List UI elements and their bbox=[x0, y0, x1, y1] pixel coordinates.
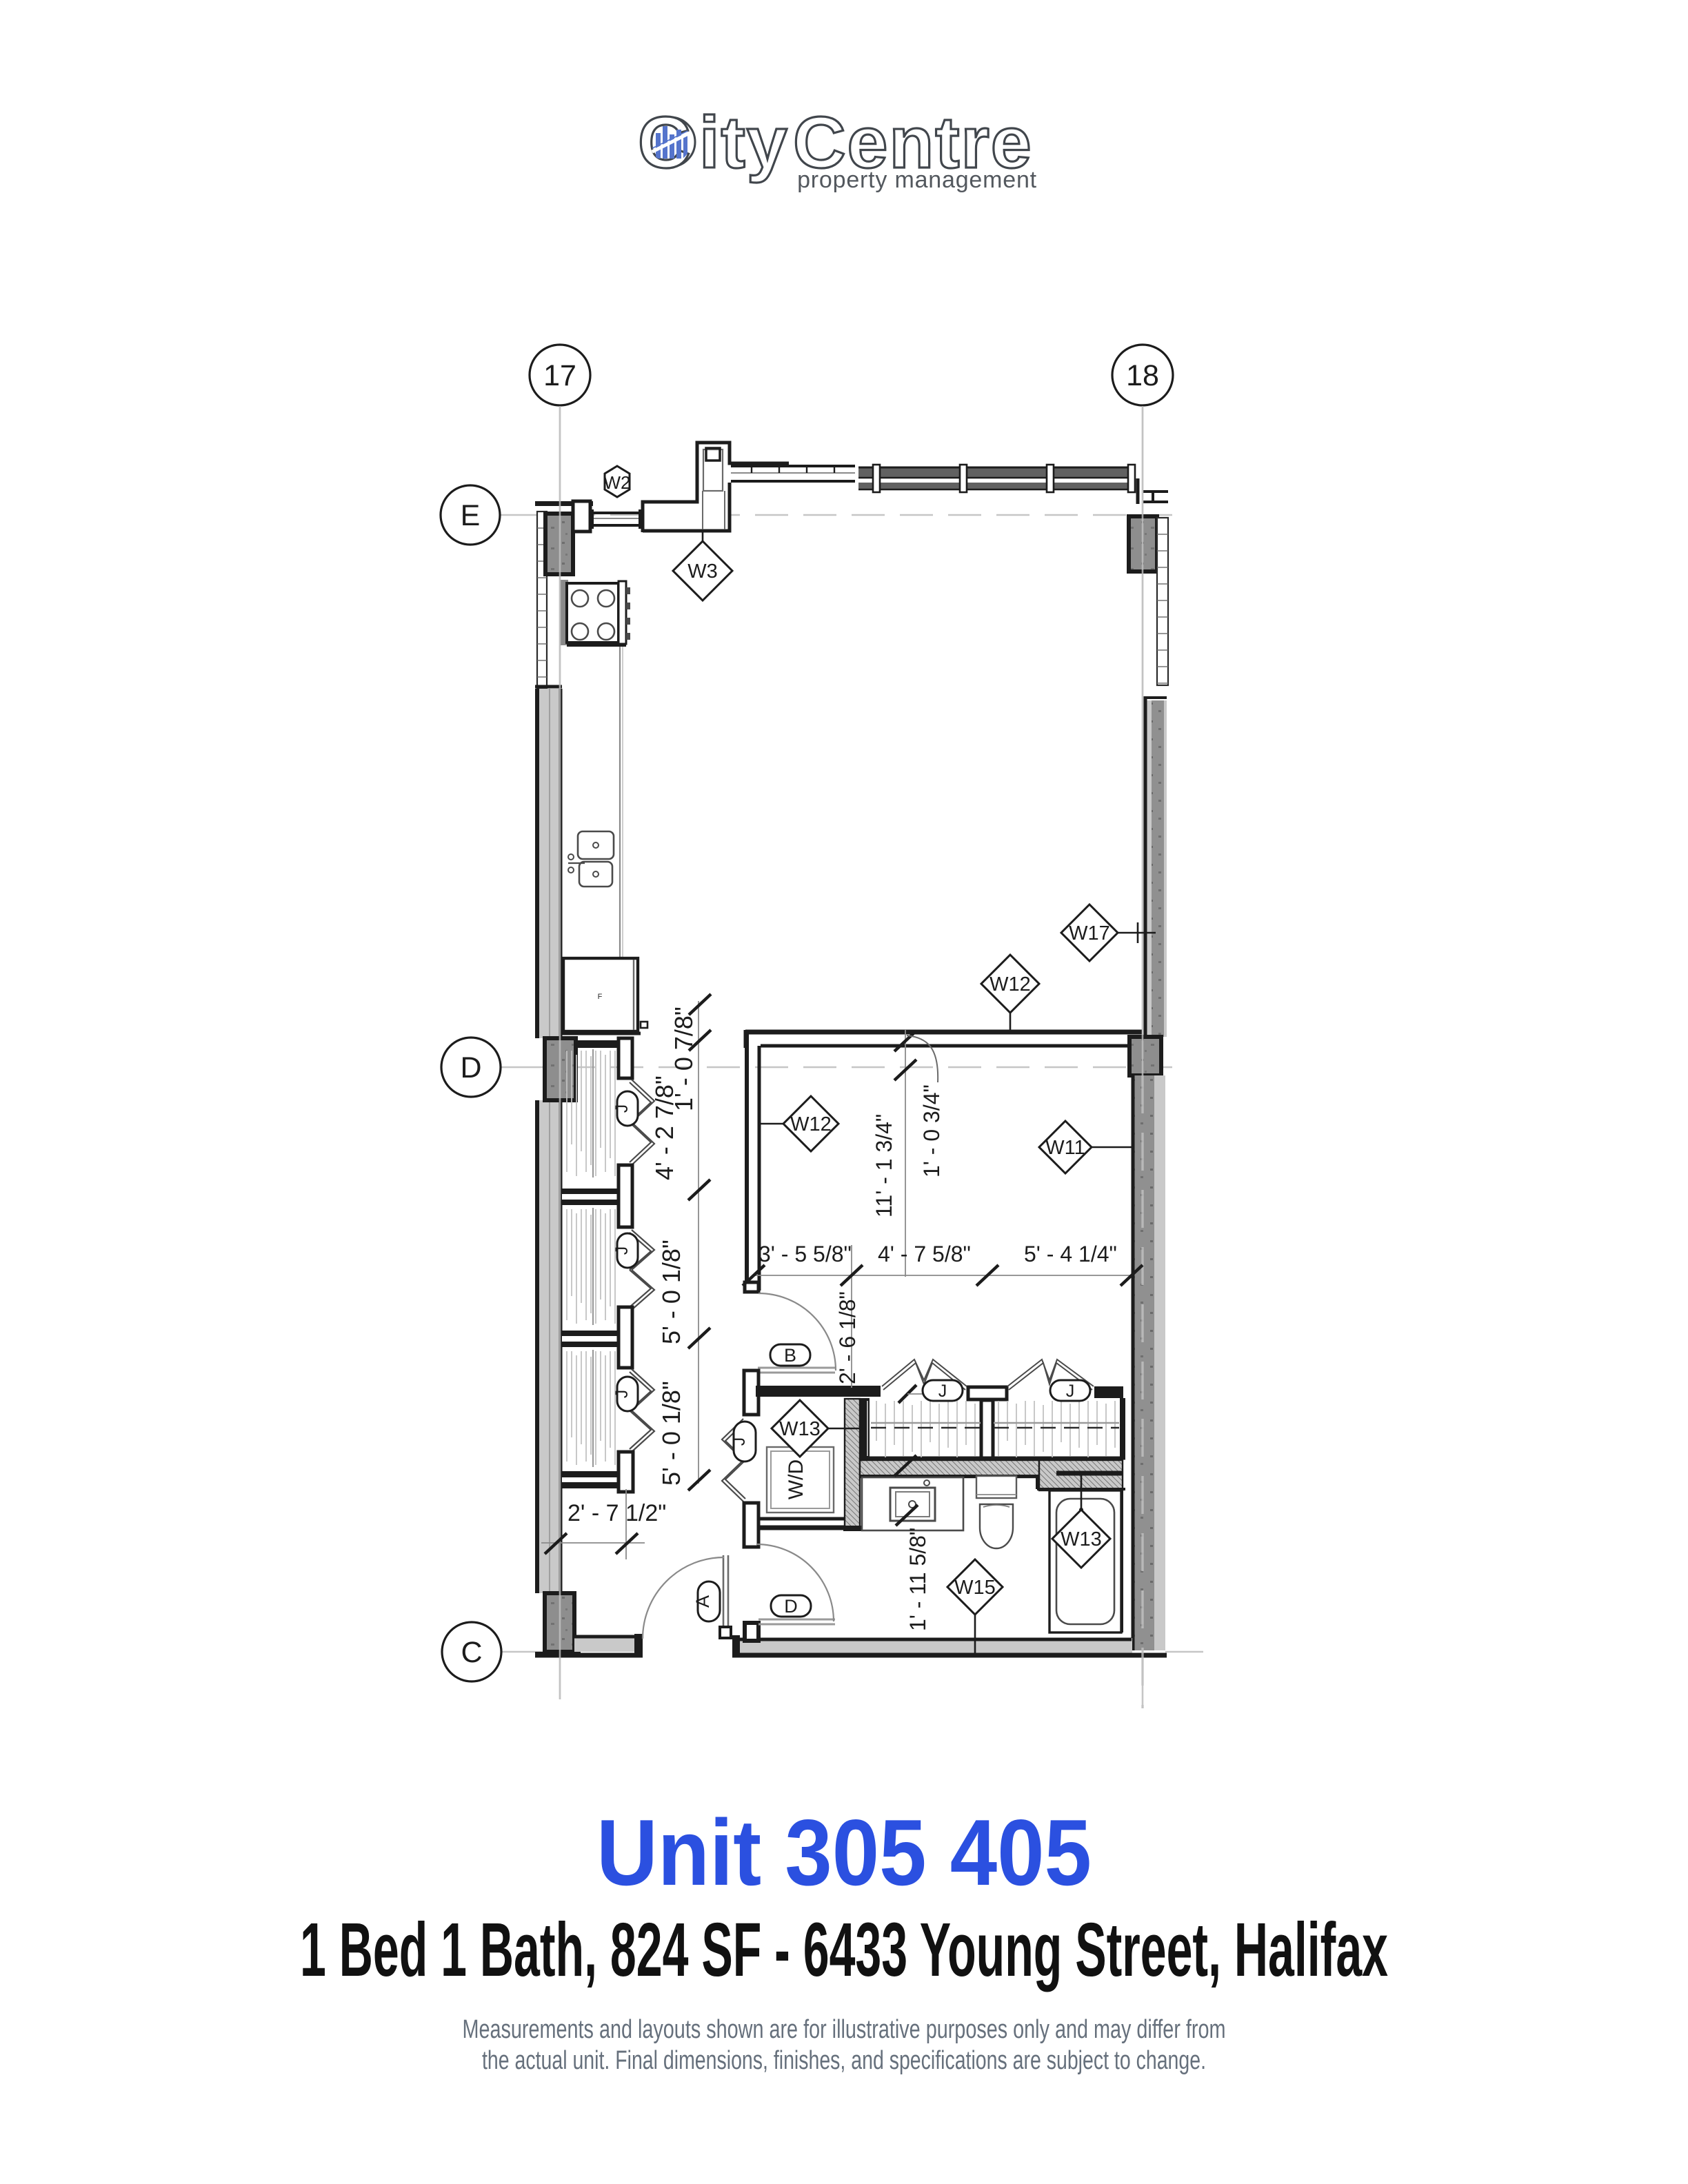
svg-text:W12: W12 bbox=[989, 973, 1031, 995]
svg-text:W3: W3 bbox=[687, 560, 718, 583]
svg-text:1 Bed 1 Bath, 824 SF - 6433 Yo: 1 Bed 1 Bath, 824 SF - 6433 Young Street… bbox=[300, 1908, 1388, 1992]
svg-text:W11: W11 bbox=[1045, 1137, 1085, 1159]
svg-text:W13: W13 bbox=[779, 1418, 821, 1440]
svg-text:3' - 5 5/8": 3' - 5 5/8" bbox=[758, 1242, 852, 1266]
svg-text:2' - 6 1/8": 2' - 6 1/8" bbox=[835, 1291, 860, 1384]
svg-text:W13: W13 bbox=[1061, 1528, 1102, 1550]
svg-text:W12: W12 bbox=[790, 1113, 832, 1135]
svg-text:4' - 2 7/8": 4' - 2 7/8" bbox=[650, 1075, 679, 1180]
svg-text:D: D bbox=[784, 1596, 798, 1617]
svg-text:1' - 11 5/8": 1' - 11 5/8" bbox=[905, 1528, 930, 1631]
svg-text:J: J bbox=[612, 1246, 632, 1255]
svg-text:F: F bbox=[598, 993, 603, 1001]
svg-text:the actual unit. Final dimensi: the actual unit. Final dimensions, finis… bbox=[482, 2046, 1206, 2075]
svg-text:A: A bbox=[692, 1595, 713, 1608]
svg-text:property management: property management bbox=[797, 167, 1037, 193]
svg-text:J: J bbox=[612, 1104, 632, 1113]
svg-text:18: 18 bbox=[1126, 359, 1159, 392]
svg-text:11' - 1 3/4": 11' - 1 3/4" bbox=[872, 1114, 896, 1217]
svg-text:J: J bbox=[938, 1382, 947, 1401]
svg-text:Measurements and layouts shown: Measurements and layouts shown are for i… bbox=[463, 2015, 1226, 2044]
svg-text:D: D bbox=[460, 1051, 481, 1084]
svg-text:W15: W15 bbox=[954, 1577, 996, 1599]
svg-text:5' - 0 1/8": 5' - 0 1/8" bbox=[657, 1240, 685, 1344]
svg-text:ity: ity bbox=[699, 102, 789, 183]
svg-text:C: C bbox=[461, 1636, 482, 1669]
svg-text:17: 17 bbox=[543, 359, 576, 392]
svg-text:J: J bbox=[730, 1437, 749, 1446]
svg-text:J: J bbox=[1066, 1382, 1075, 1401]
svg-text:4' - 7 5/8": 4' - 7 5/8" bbox=[878, 1242, 971, 1266]
svg-text:Unit 305 405: Unit 305 405 bbox=[596, 1800, 1092, 1905]
svg-text:W2: W2 bbox=[604, 472, 631, 493]
svg-text:W/D: W/D bbox=[785, 1459, 807, 1499]
svg-text:J: J bbox=[612, 1390, 632, 1399]
svg-text:W17: W17 bbox=[1069, 922, 1110, 944]
svg-text:5' - 4 1/4": 5' - 4 1/4" bbox=[1024, 1242, 1117, 1266]
svg-text:2' - 7 1/2": 2' - 7 1/2" bbox=[567, 1500, 666, 1526]
svg-text:B: B bbox=[784, 1345, 796, 1366]
svg-text:E: E bbox=[461, 499, 481, 532]
svg-text:1' - 0 3/4": 1' - 0 3/4" bbox=[919, 1084, 944, 1177]
svg-text:5' - 0 1/8": 5' - 0 1/8" bbox=[657, 1381, 685, 1486]
